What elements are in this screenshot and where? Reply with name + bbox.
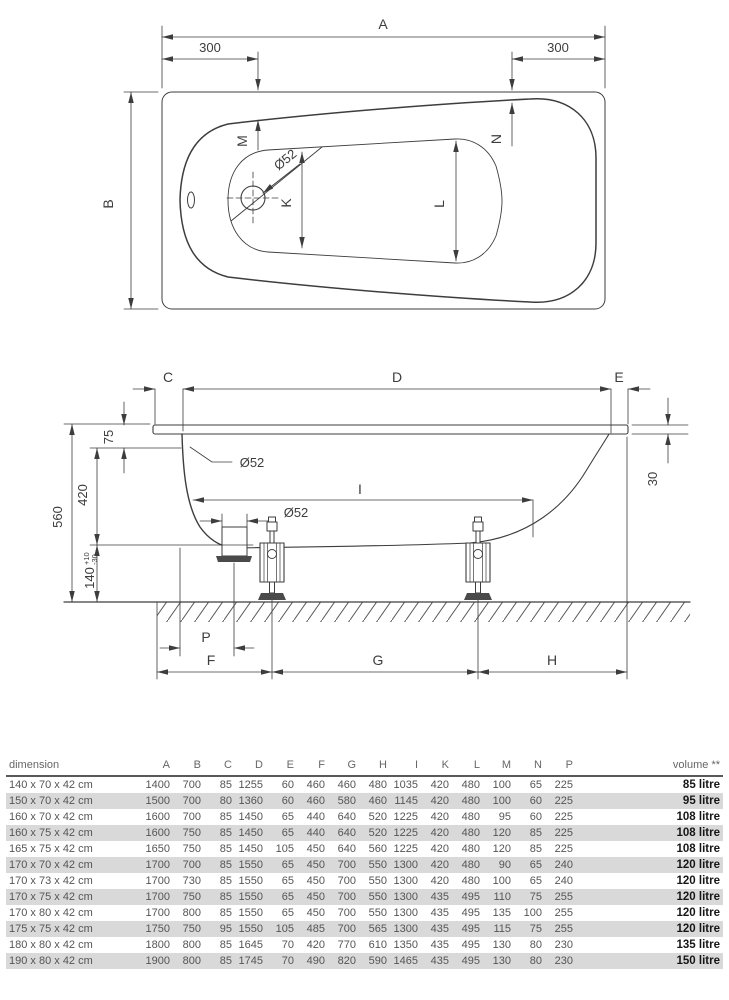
value-cell: 565 [359, 921, 390, 937]
technical-drawing: Ø52 A 300 300 B M N K L [0, 0, 729, 735]
value-cell: 115 [483, 921, 514, 937]
drain-dia-extensions [222, 514, 247, 527]
value-cell: 1035 [390, 776, 421, 793]
value-cell: 100 [483, 793, 514, 809]
value-cell: 460 [359, 793, 390, 809]
header-cell: D [235, 757, 266, 776]
value-cell: 480 [452, 809, 483, 825]
value-cell: 1225 [390, 841, 421, 857]
value-cell: 1550 [235, 873, 266, 889]
value-cell: 1600 [142, 825, 173, 841]
dim-140-value: 140 [82, 567, 97, 589]
value-cell: 460 [297, 776, 328, 793]
value-cell: 1450 [235, 809, 266, 825]
value-cell: 85 [204, 809, 235, 825]
value-cell: 60 [266, 793, 297, 809]
dim-b-label: B [100, 199, 116, 208]
dim-m-label: M [234, 135, 250, 147]
value-cell: 1350 [390, 937, 421, 953]
value-cell: 700 [173, 793, 204, 809]
value-cell: 80 [204, 793, 235, 809]
table-row: 170 x 70 x 42 cm170070085155065450700550… [6, 857, 723, 873]
value-cell: 225 [545, 825, 576, 841]
foot-left [258, 517, 286, 600]
dim-g-label: G [373, 652, 384, 668]
value-cell: 85 [514, 825, 545, 841]
value-cell: 65 [266, 825, 297, 841]
value-cell: 65 [266, 905, 297, 921]
bottom-and-right-curve [231, 434, 609, 548]
dim-e-label: E [614, 369, 623, 385]
value-cell: 435 [421, 905, 452, 921]
volume-cell: 108 litre [576, 809, 723, 825]
value-cell: 750 [173, 841, 204, 857]
dimension-table-head-row: dimensionABCDEFGHIKLMNPvolume ** [6, 757, 723, 776]
value-cell: 85 [514, 841, 545, 857]
value-cell: 1745 [235, 953, 266, 969]
value-cell: 480 [452, 873, 483, 889]
dim-300r-label: 300 [547, 40, 569, 55]
value-cell: 560 [359, 841, 390, 857]
volume-cell: 95 litre [576, 793, 723, 809]
value-cell: 1550 [235, 921, 266, 937]
value-cell: 70 [266, 937, 297, 953]
dimension-cell: 170 x 70 x 42 cm [6, 857, 142, 873]
dimension-table-body: 140 x 70 x 42 cm140070085125560460460480… [6, 776, 723, 969]
header-cell: M [483, 757, 514, 776]
value-cell: 85 [204, 889, 235, 905]
header-cell: F [297, 757, 328, 776]
dimension-cell: 175 x 75 x 42 cm [6, 921, 142, 937]
dimension-cell: 160 x 75 x 42 cm [6, 825, 142, 841]
value-cell: 450 [297, 889, 328, 905]
value-cell: 820 [328, 953, 359, 969]
value-cell: 480 [452, 857, 483, 873]
value-cell: 420 [421, 873, 452, 889]
dim-l-label: L [431, 200, 447, 208]
dimension-cell: 180 x 80 x 42 cm [6, 937, 142, 953]
header-cell: dimension [6, 757, 142, 776]
tub-basin-outline [228, 139, 502, 263]
value-cell: 700 [328, 905, 359, 921]
value-cell: 770 [328, 937, 359, 953]
dim-140-tol-minus: -30 [90, 554, 99, 565]
volume-cell: 108 litre [576, 825, 723, 841]
value-cell: 1700 [142, 857, 173, 873]
value-cell: 135 [483, 905, 514, 921]
value-cell: 85 [204, 841, 235, 857]
value-cell: 480 [452, 825, 483, 841]
value-cell: 255 [545, 921, 576, 937]
value-cell: 460 [328, 776, 359, 793]
rim-slab [153, 425, 628, 434]
value-cell: 420 [421, 841, 452, 857]
dim-h-label: H [547, 652, 557, 668]
value-cell: 100 [483, 873, 514, 889]
header-cell: N [514, 757, 545, 776]
dim-d-label: D [392, 369, 402, 385]
value-cell: 240 [545, 857, 576, 873]
dim-c-label: C [163, 369, 173, 385]
value-cell: 1700 [142, 873, 173, 889]
value-cell: 485 [297, 921, 328, 937]
header-cell: L [452, 757, 483, 776]
overflow-hole [188, 192, 195, 208]
header-cell: A [142, 757, 173, 776]
value-cell: 435 [421, 937, 452, 953]
value-cell: 1500 [142, 793, 173, 809]
volume-cell: 108 litre [576, 841, 723, 857]
value-cell: 1700 [142, 889, 173, 905]
value-cell: 520 [359, 825, 390, 841]
table-row: 160 x 70 x 42 cm160070085145065440640520… [6, 809, 723, 825]
value-cell: 230 [545, 937, 576, 953]
value-cell: 1750 [142, 921, 173, 937]
dim-420-label: 420 [75, 484, 90, 506]
value-cell: 450 [297, 873, 328, 889]
value-cell: 1300 [390, 905, 421, 921]
value-cell: 420 [421, 825, 452, 841]
dim-b-extensions [124, 92, 158, 309]
value-cell: 65 [266, 873, 297, 889]
value-cell: 550 [359, 889, 390, 905]
foot-right [464, 517, 492, 600]
value-cell: 750 [173, 889, 204, 905]
dimension-table-section: dimensionABCDEFGHIKLMNPvolume ** 140 x 7… [0, 757, 729, 969]
dim-560-label: 560 [50, 506, 65, 528]
value-cell: 480 [359, 776, 390, 793]
header-cell: G [328, 757, 359, 776]
value-cell: 1300 [390, 921, 421, 937]
value-cell: 1255 [235, 776, 266, 793]
value-cell: 700 [173, 857, 204, 873]
value-cell: 230 [545, 953, 576, 969]
value-cell: 1900 [142, 953, 173, 969]
value-cell: 450 [297, 905, 328, 921]
volume-cell: 85 litre [576, 776, 723, 793]
dimension-cell: 190 x 80 x 42 cm [6, 953, 142, 969]
dimension-cell: 170 x 80 x 42 cm [6, 905, 142, 921]
value-cell: 750 [173, 825, 204, 841]
value-cell: 85 [204, 857, 235, 873]
value-cell: 495 [452, 905, 483, 921]
value-cell: 85 [204, 953, 235, 969]
value-cell: 1225 [390, 825, 421, 841]
value-cell: 65 [266, 809, 297, 825]
dimension-cell: 165 x 75 x 42 cm [6, 841, 142, 857]
value-cell: 130 [483, 937, 514, 953]
volume-cell: 150 litre [576, 953, 723, 969]
value-cell: 100 [483, 776, 514, 793]
value-cell: 450 [297, 841, 328, 857]
overflow-dia-leader [190, 447, 232, 462]
value-cell: 1145 [390, 793, 421, 809]
value-cell: 65 [266, 857, 297, 873]
value-cell: 495 [452, 921, 483, 937]
header-cell: volume ** [576, 757, 723, 776]
overflow-dia-label: Ø52 [240, 455, 265, 470]
value-cell: 580 [328, 793, 359, 809]
dim-n-label: N [488, 134, 504, 144]
value-cell: 610 [359, 937, 390, 953]
dim-30-label: 30 [645, 472, 660, 486]
value-cell: 700 [173, 776, 204, 793]
value-cell: 130 [483, 953, 514, 969]
value-cell: 65 [514, 857, 545, 873]
value-cell: 1550 [235, 857, 266, 873]
value-cell: 550 [359, 905, 390, 921]
value-cell: 255 [545, 889, 576, 905]
volume-cell: 120 litre [576, 921, 723, 937]
header-cell: I [390, 757, 421, 776]
dim-p-label: P [201, 629, 210, 645]
floor-hatching [157, 602, 690, 622]
value-cell: 85 [204, 825, 235, 841]
value-cell: 75 [514, 921, 545, 937]
value-cell: 450 [297, 857, 328, 873]
value-cell: 85 [204, 776, 235, 793]
value-cell: 255 [545, 905, 576, 921]
value-cell: 590 [359, 953, 390, 969]
value-cell: 435 [421, 921, 452, 937]
table-row: 190 x 80 x 42 cm190080085174570490820590… [6, 953, 723, 969]
value-cell: 65 [514, 776, 545, 793]
value-cell: 420 [297, 937, 328, 953]
header-cell: C [204, 757, 235, 776]
value-cell: 225 [545, 776, 576, 793]
dimension-cell: 160 x 70 x 42 cm [6, 809, 142, 825]
volume-cell: 120 litre [576, 905, 723, 921]
dim-i-label: I [358, 481, 362, 497]
table-row: 170 x 75 x 42 cm170075085155065450700550… [6, 889, 723, 905]
value-cell: 800 [173, 937, 204, 953]
value-cell: 490 [297, 953, 328, 969]
value-cell: 420 [421, 776, 452, 793]
value-cell: 60 [514, 793, 545, 809]
value-cell: 800 [173, 953, 204, 969]
value-cell: 120 [483, 841, 514, 857]
table-row: 150 x 70 x 42 cm150070080136060460580460… [6, 793, 723, 809]
table-row: 170 x 73 x 42 cm170073085155065450700550… [6, 873, 723, 889]
value-cell: 85 [204, 937, 235, 953]
value-cell: 1400 [142, 776, 173, 793]
volume-cell: 120 litre [576, 857, 723, 873]
dimension-table: dimensionABCDEFGHIKLMNPvolume ** 140 x 7… [6, 757, 723, 969]
value-cell: 95 [204, 921, 235, 937]
value-cell: 495 [452, 937, 483, 953]
value-cell: 75 [514, 889, 545, 905]
header-cell: H [359, 757, 390, 776]
value-cell: 105 [266, 841, 297, 857]
top-view: Ø52 A 300 300 B M N K L [100, 16, 605, 309]
value-cell: 95 [483, 809, 514, 825]
dim-140-label: 140 +10 -30 [82, 552, 99, 589]
dim-30-extensions [632, 425, 688, 434]
tub-rim-outline [180, 99, 596, 303]
dimension-cell: 170 x 73 x 42 cm [6, 873, 142, 889]
value-cell: 105 [266, 921, 297, 937]
table-row: 170 x 80 x 42 cm170080085155065450700550… [6, 905, 723, 921]
side-view: Ø52 Ø52 I C D E 30 560 420 75 [50, 369, 690, 679]
value-cell: 1450 [235, 841, 266, 857]
value-cell: 435 [421, 889, 452, 905]
value-cell: 100 [514, 905, 545, 921]
value-cell: 90 [483, 857, 514, 873]
value-cell: 800 [173, 905, 204, 921]
table-row: 160 x 75 x 42 cm160075085145065440640520… [6, 825, 723, 841]
value-cell: 750 [173, 921, 204, 937]
drain-pipe [222, 527, 247, 556]
value-cell: 80 [514, 937, 545, 953]
value-cell: 85 [204, 905, 235, 921]
value-cell: 460 [297, 793, 328, 809]
value-cell: 1300 [390, 889, 421, 905]
value-cell: 550 [359, 873, 390, 889]
value-cell: 60 [514, 809, 545, 825]
header-cell: P [545, 757, 576, 776]
dimension-cell: 140 x 70 x 42 cm [6, 776, 142, 793]
value-cell: 1600 [142, 809, 173, 825]
value-cell: 1550 [235, 905, 266, 921]
value-cell: 440 [297, 825, 328, 841]
drain-flange [216, 556, 252, 562]
value-cell: 1650 [142, 841, 173, 857]
value-cell: 1300 [390, 857, 421, 873]
value-cell: 225 [545, 841, 576, 857]
value-cell: 65 [266, 889, 297, 905]
value-cell: 1645 [235, 937, 266, 953]
value-cell: 1225 [390, 809, 421, 825]
value-cell: 640 [328, 841, 359, 857]
value-cell: 640 [328, 825, 359, 841]
value-cell: 80 [514, 953, 545, 969]
value-cell: 520 [359, 809, 390, 825]
value-cell: 700 [173, 809, 204, 825]
value-cell: 60 [266, 776, 297, 793]
dimension-cell: 170 x 75 x 42 cm [6, 889, 142, 905]
volume-cell: 120 litre [576, 889, 723, 905]
value-cell: 700 [328, 921, 359, 937]
value-cell: 1360 [235, 793, 266, 809]
dim-a-label: A [378, 16, 388, 32]
header-cell: K [421, 757, 452, 776]
header-cell: B [173, 757, 204, 776]
value-cell: 420 [421, 857, 452, 873]
value-cell: 495 [452, 953, 483, 969]
value-cell: 1550 [235, 889, 266, 905]
dim-f-label: F [207, 652, 216, 668]
value-cell: 730 [173, 873, 204, 889]
value-cell: 700 [328, 889, 359, 905]
value-cell: 1465 [390, 953, 421, 969]
value-cell: 1800 [142, 937, 173, 953]
value-cell: 65 [514, 873, 545, 889]
value-cell: 480 [452, 776, 483, 793]
value-cell: 120 [483, 825, 514, 841]
value-cell: 225 [545, 793, 576, 809]
table-row: 180 x 80 x 42 cm180080085164570420770610… [6, 937, 723, 953]
value-cell: 240 [545, 873, 576, 889]
value-cell: 480 [452, 793, 483, 809]
volume-cell: 135 litre [576, 937, 723, 953]
value-cell: 1300 [390, 873, 421, 889]
value-cell: 480 [452, 841, 483, 857]
value-cell: 85 [204, 873, 235, 889]
dim-300l-label: 300 [199, 40, 221, 55]
value-cell: 700 [328, 873, 359, 889]
table-row: 140 x 70 x 42 cm140070085125560460460480… [6, 776, 723, 793]
header-cell: E [266, 757, 297, 776]
value-cell: 640 [328, 809, 359, 825]
dim-a-extensions [162, 26, 605, 88]
value-cell: 420 [421, 809, 452, 825]
value-cell: 70 [266, 953, 297, 969]
value-cell: 1700 [142, 905, 173, 921]
value-cell: 550 [359, 857, 390, 873]
value-cell: 435 [421, 953, 452, 969]
dimension-cell: 150 x 70 x 42 cm [6, 793, 142, 809]
dim-k-label: K [278, 198, 294, 208]
value-cell: 110 [483, 889, 514, 905]
value-cell: 420 [421, 793, 452, 809]
volume-cell: 120 litre [576, 873, 723, 889]
table-row: 165 x 75 x 42 cm165075085145010545064056… [6, 841, 723, 857]
value-cell: 225 [545, 809, 576, 825]
dim-75-label: 75 [101, 430, 116, 444]
value-cell: 440 [297, 809, 328, 825]
value-cell: 1450 [235, 825, 266, 841]
value-cell: 495 [452, 889, 483, 905]
value-cell: 700 [328, 857, 359, 873]
drain-dia-label: Ø52 [284, 505, 309, 520]
table-row: 175 x 75 x 42 cm175075095155010548570056… [6, 921, 723, 937]
